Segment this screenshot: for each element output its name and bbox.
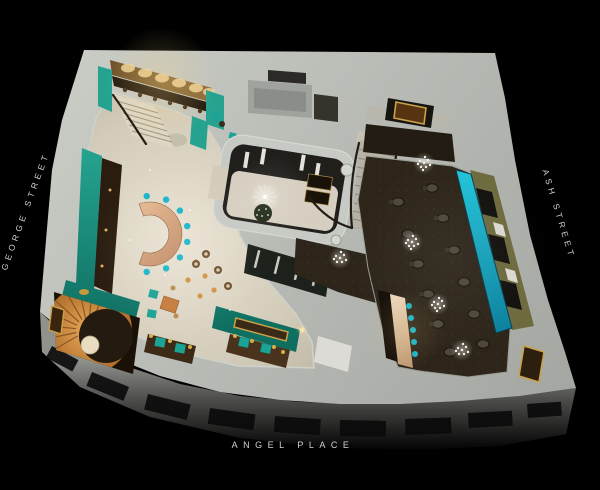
teal-panel-stairs bbox=[190, 116, 208, 150]
gold-frame-west bbox=[49, 306, 64, 334]
round-table bbox=[81, 336, 99, 354]
gold-frame-southeast bbox=[519, 346, 544, 382]
floorplan-render: GEORGE STREET ASH STREET ANGEL PLACE bbox=[0, 0, 600, 490]
teal-panel-left bbox=[98, 66, 112, 112]
angel-place-label: ANGEL PLACE bbox=[232, 440, 355, 450]
floorplan-scene: GEORGE STREET ASH STREET ANGEL PLACE bbox=[0, 0, 600, 490]
hall-chandelier bbox=[329, 247, 351, 269]
